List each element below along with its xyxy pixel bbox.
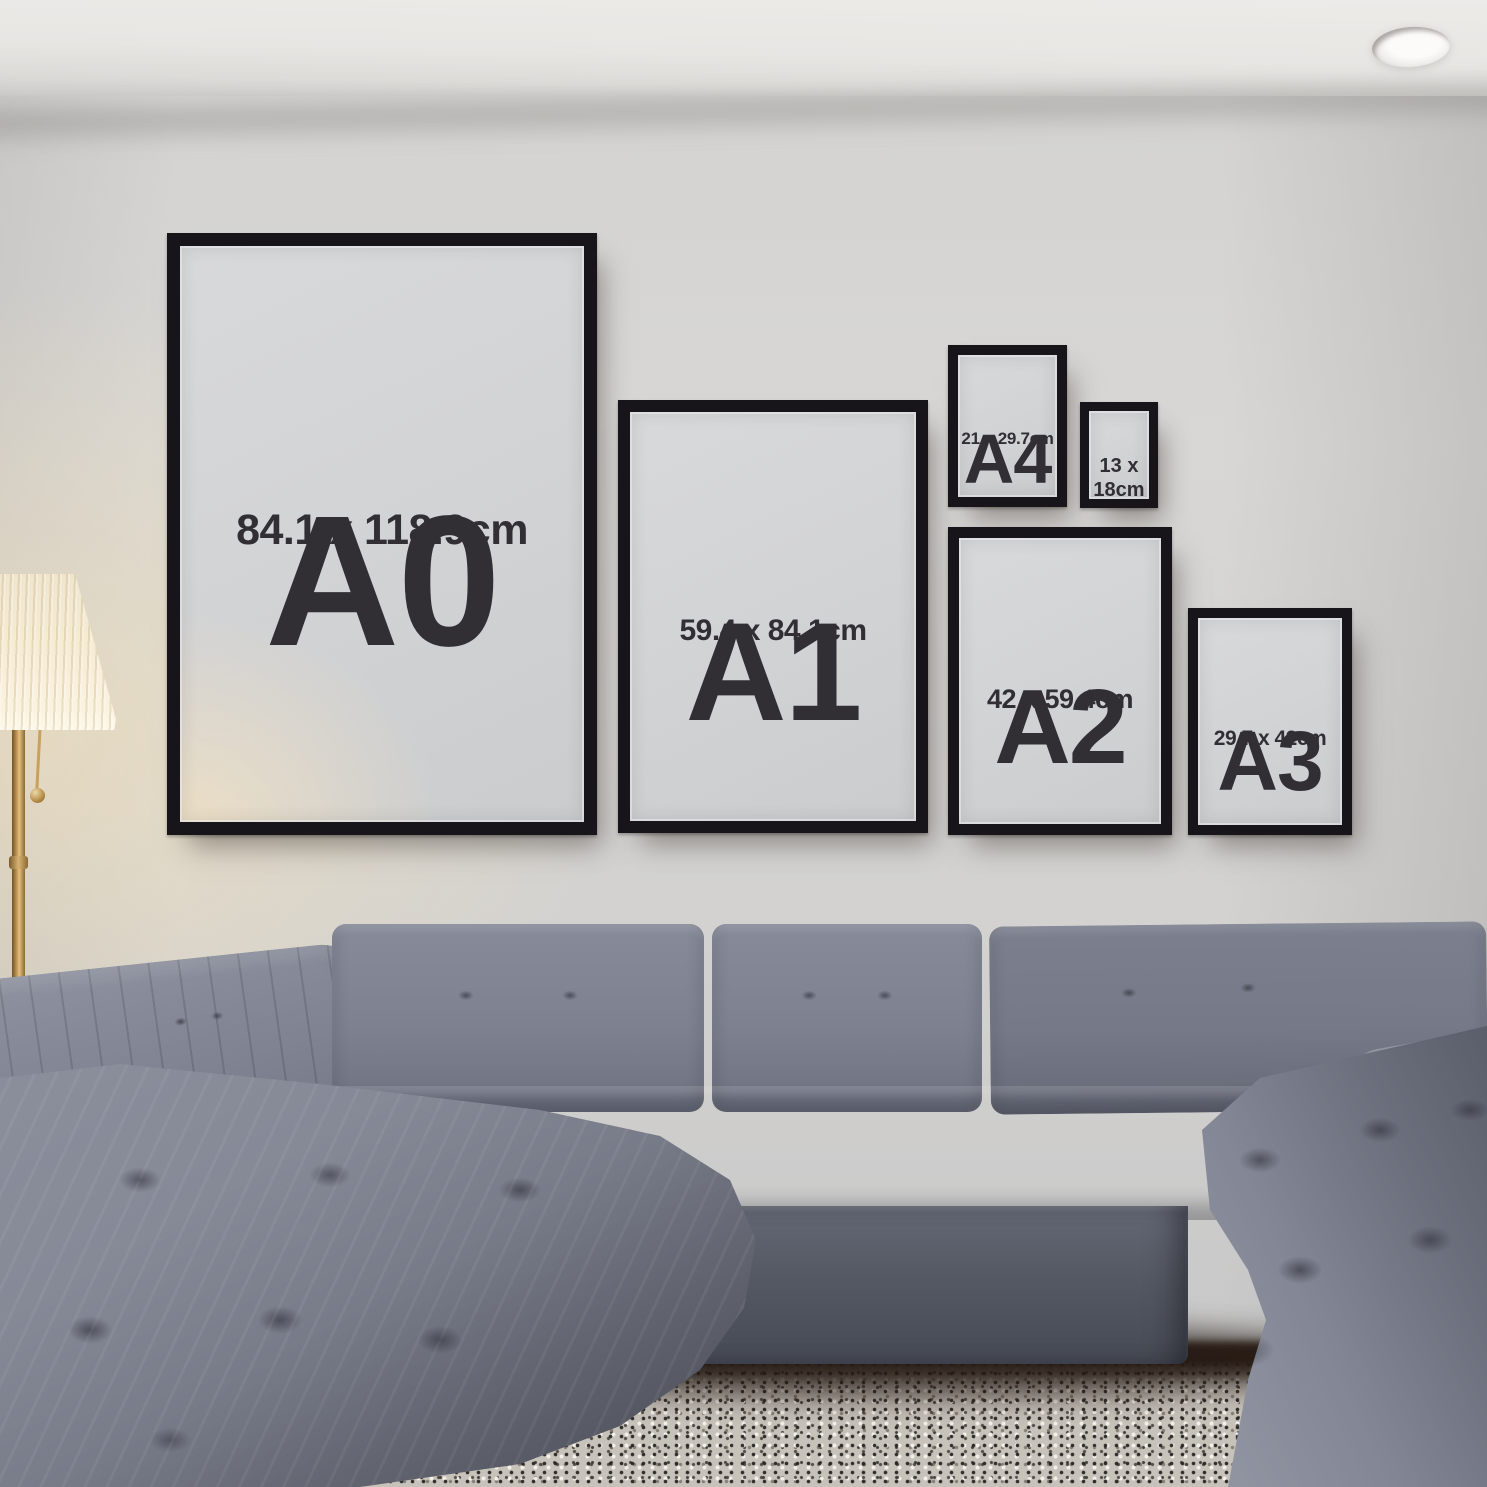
sofa-back-cushion [712,924,982,1112]
sectional-sofa [0,0,1487,1487]
living-room-scene: A0 84.1 x 118.9cm A1 59.4 x 84.1cm A4 21… [0,0,1487,1487]
sofa-back-cushion [332,924,704,1112]
